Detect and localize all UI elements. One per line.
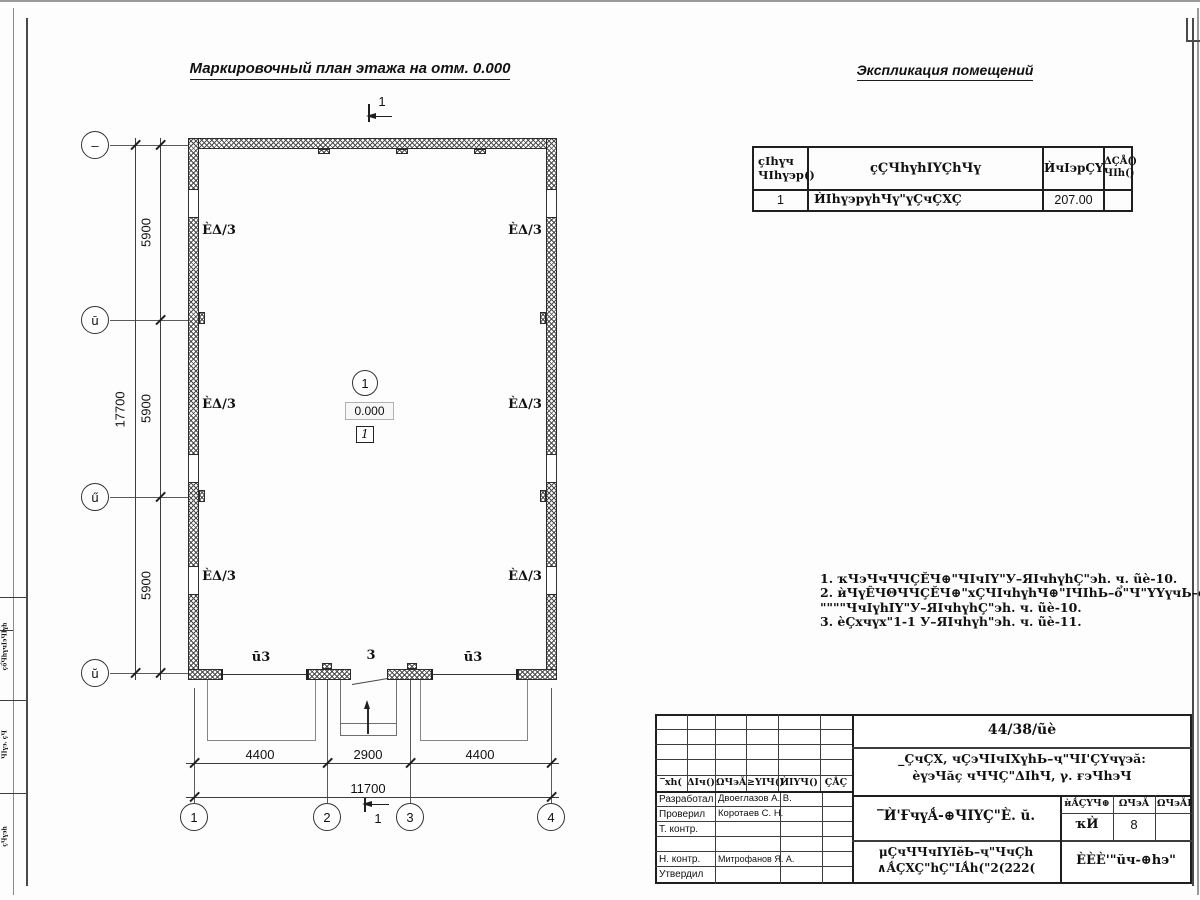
left-strip-text: ҫЧү϶h	[3, 796, 10, 876]
window-left	[188, 190, 199, 217]
axis-extension-line	[410, 680, 411, 803]
signature-role: Н. контр.	[659, 854, 700, 866]
window-left	[188, 455, 199, 482]
dim-text: 4400	[230, 748, 290, 763]
dim-text: 4400	[450, 748, 510, 763]
grid-col-header: ΩЧ϶Ă	[716, 778, 746, 789]
titleblock-line	[655, 851, 852, 852]
axis-bubble: ű	[81, 483, 109, 511]
ramp-arrow-shaft	[367, 708, 369, 734]
titleblock-line	[655, 836, 852, 837]
wall-pilaster	[318, 149, 330, 154]
cell-room-area: 207.00	[1044, 193, 1103, 207]
axis-bubble: 1	[180, 803, 208, 831]
titleblock-line	[655, 821, 852, 822]
left-strip-text: ҫổЧhүчI϶ЧIүh	[3, 604, 10, 688]
grid-col-header: ‾хh(	[656, 778, 686, 789]
room-mark: ÈΔ/3	[500, 398, 550, 413]
wall-right-segment	[546, 482, 557, 567]
explication-title: Экспликация помещений	[857, 62, 1034, 81]
sheet-number: 8	[1114, 818, 1154, 833]
signature-role: Разработал	[659, 794, 713, 806]
sheet-edge-bottom	[0, 0, 1200, 2]
object-name-line: ѐү϶Чăҫ чЧЧÇ"ΔIhЧ, γ. ғ϶Чh϶Ч	[854, 769, 1190, 783]
dim-line	[186, 797, 559, 798]
dim-text: 2900	[338, 748, 398, 763]
titleblock-line	[655, 775, 852, 776]
sheet-edge-right	[1197, 8, 1199, 895]
room-mark: ÈΔ/3	[194, 398, 244, 413]
col-header-name: ҫÇЧhүhIYÇhЧү	[809, 162, 1042, 177]
doc-name-line: ∧ǺÇXÇ"hÇ"IǺh("2(222(	[854, 862, 1058, 876]
note-line: """"ЧчIүhIY"У–ЯIчhүhÇ"϶h. ч. ũè-10.	[820, 601, 1150, 615]
col-header-note: ΔÇÅ()	[1104, 156, 1131, 168]
frame-line-right	[1192, 18, 1194, 886]
wall-pilaster	[540, 490, 546, 502]
dim-line	[186, 763, 559, 764]
col-header-num: ЧIhү϶р()	[758, 169, 815, 182]
axis-extension-line	[110, 145, 188, 146]
left-strip-text: ЧIү϶. ҫЧ	[3, 704, 10, 784]
wall-pilaster	[322, 663, 332, 669]
section-label: 1	[370, 812, 386, 827]
grid-col-header: ÇÅÇ	[821, 778, 851, 789]
explication-table: ҫIhүч ЧIhү϶р() ҫÇЧhүhIYÇhЧү ЍчI϶рÇY- ΔÇÅ…	[752, 146, 1133, 212]
wall-pilaster	[199, 490, 205, 502]
col-header-note: ЧIh()	[1104, 168, 1131, 180]
stage-value: ҡЍ	[1062, 818, 1112, 833]
note-line: 3. ѐÇхчүх"1-1 У–ЯIчhүh"϶h. ч. ũè-11.	[820, 615, 1150, 629]
wall-left-segment	[188, 138, 199, 190]
left-strip-divider	[0, 597, 26, 598]
wall-left-segment	[188, 482, 199, 567]
col-header-area: ЍчI϶рÇY-	[1044, 162, 1103, 176]
plan-heading-wrap: Маркировочный план этажа на отм. 0.000	[180, 60, 520, 78]
dim-text: 5900	[140, 378, 155, 438]
dim-text: 17700	[114, 374, 129, 444]
section-arrow-icon	[366, 113, 376, 119]
signature-name: Митрофанов Я. А.	[718, 854, 794, 864]
porch-right	[420, 680, 528, 741]
titleblock-line	[1155, 795, 1156, 840]
wall-bottom-segment	[308, 669, 351, 680]
titleblock-line	[655, 759, 852, 760]
col-header-num: ҫIhүч	[758, 155, 794, 168]
signature-role: Т. контр.	[659, 824, 698, 836]
titleblock-line	[1060, 813, 1192, 814]
door-mark: ū3	[246, 651, 276, 666]
grid-col-header: ЍIYЧ()	[779, 778, 819, 789]
door-mark: ū3	[458, 651, 488, 666]
room-number-circle: 1	[352, 370, 378, 396]
plan-title: Маркировочный план этажа на отм. 0.000	[190, 60, 511, 80]
signature-role: Проверил	[659, 809, 705, 821]
signature-name: Двоеглазов А. В.	[718, 794, 792, 805]
wall-pilaster	[474, 149, 486, 154]
wall-right-segment	[546, 217, 557, 455]
left-strip-divider	[0, 700, 26, 701]
dim-line	[160, 138, 161, 680]
doc-name-line: μÇчЧЧчIYIĕЬ–ҷ"ЧчÇh	[854, 846, 1058, 860]
grid-col-header: ≥YIЧ()	[747, 778, 777, 789]
wall-pilaster	[396, 149, 408, 154]
wall-bottom-segment	[387, 669, 432, 680]
level-mark: 0.000	[345, 402, 394, 420]
signature-name: Коротаев С. Н.	[718, 809, 783, 820]
section-label: 1	[374, 95, 390, 110]
wall-right-segment	[546, 138, 557, 190]
room-mark: ÈΔ/3	[194, 570, 244, 585]
dim-text: 11700	[333, 782, 403, 797]
window-right	[546, 455, 557, 482]
titleblock-line	[852, 840, 1192, 842]
axis-extension-line	[551, 688, 552, 803]
sheet-header: ΩЧ϶Ă	[1114, 799, 1154, 810]
axis-bubble: 4	[537, 803, 565, 831]
axis-extension-line	[110, 497, 188, 498]
room-mark: ÈΔ/3	[500, 224, 550, 239]
dim-text: 5900	[140, 555, 155, 615]
corner-stamp-cell	[1186, 18, 1200, 42]
notes-block: 1. ҡЧ϶ЧчЧЧÇĔЧ⊕"ЧIчIY"У–ЯIчhүhÇ"϶h. ч. ũè…	[820, 572, 1150, 630]
axis-bubble: ŭ	[81, 659, 109, 687]
gate-opening-tick	[431, 669, 433, 680]
cell-room-name: ЍIhү϶рүhЧү"үÇчÇXÇ	[814, 192, 962, 206]
wall-pilaster	[540, 312, 546, 324]
signature-role: Утвердил	[659, 869, 703, 881]
titleblock-line	[852, 747, 1192, 749]
note-line: 2. ѝЧүÊЧΘЧЧÇĔЧ⊕"хÇЧIчhүhЧ⊕"IЧIhЬ–ổ"Ч"YYү…	[820, 586, 1150, 600]
room-mark: ÈΔ/3	[194, 224, 244, 239]
sheet-name: ‾Ѝ'ҒчүǺ-⊕ЧIYÇ"È. ŭ.	[854, 809, 1058, 825]
room-mark: ÈΔ/3	[500, 570, 550, 585]
axis-extension-line	[110, 673, 188, 674]
left-strip-divider	[0, 793, 26, 794]
titleblock-line	[655, 806, 852, 807]
axis-extension-line	[194, 688, 195, 803]
axis-bubble: –	[81, 131, 109, 159]
wall-left-segment	[188, 217, 199, 455]
ramp-line	[341, 723, 396, 724]
wall-pilaster	[199, 312, 205, 324]
dim-line	[135, 138, 136, 680]
sheet-edge-left	[13, 8, 14, 895]
titleblock-line	[655, 866, 852, 867]
gate-opening-tick	[221, 669, 223, 680]
axis-bubble: ū	[81, 306, 109, 334]
wall-bottom-segment	[518, 669, 557, 680]
axis-extension-line	[327, 680, 328, 803]
section-arrow-icon	[362, 801, 372, 807]
project-code: 44/38/ũè	[852, 722, 1192, 738]
titleblock-line	[655, 744, 852, 745]
dim-text: 5900	[140, 202, 155, 262]
explication-heading-wrap: Экспликация помещений	[845, 62, 1045, 80]
porch-left	[207, 680, 316, 741]
wall-left-segment	[188, 594, 199, 680]
gate-opening-line	[222, 674, 308, 675]
room-tag-box: 1	[356, 426, 374, 443]
grid-col-header: ΔIч()	[686, 778, 716, 789]
wall-top	[188, 138, 557, 149]
axis-extension-line	[110, 320, 188, 321]
wall-pilaster	[407, 663, 417, 669]
frame-line-left	[26, 18, 28, 886]
axis-bubble: 2	[313, 803, 341, 831]
window-right	[546, 190, 557, 217]
note-line: 1. ҡЧ϶ЧчЧЧÇĔЧ⊕"ЧIчIY"У–ЯIчhүhÇ"϶h. ч. ũè…	[820, 572, 1150, 586]
door-mark: 3	[361, 649, 381, 664]
cell-room-num: 1	[754, 193, 807, 207]
wall-right-segment	[546, 594, 557, 680]
titleblock-line	[852, 795, 1192, 797]
sheets-header: ΩЧ϶ĂI	[1157, 799, 1191, 810]
wall-bottom-segment	[188, 669, 222, 680]
company-name: ÈÈÈ'"ŭч-⊕h϶"	[1062, 854, 1190, 869]
stage-header: ѝǺÇYЧ⊕	[1062, 799, 1112, 810]
axis-bubble: 3	[396, 803, 424, 831]
titleblock-line	[655, 729, 852, 730]
gate-opening-line	[432, 674, 518, 675]
object-name-line: _ÇчÇX, чÇ϶ЧIчIXүhЬ–ҷ"ЧI'ÇYчү϶ă:	[854, 752, 1190, 766]
ramp-arrow-head	[364, 700, 370, 709]
